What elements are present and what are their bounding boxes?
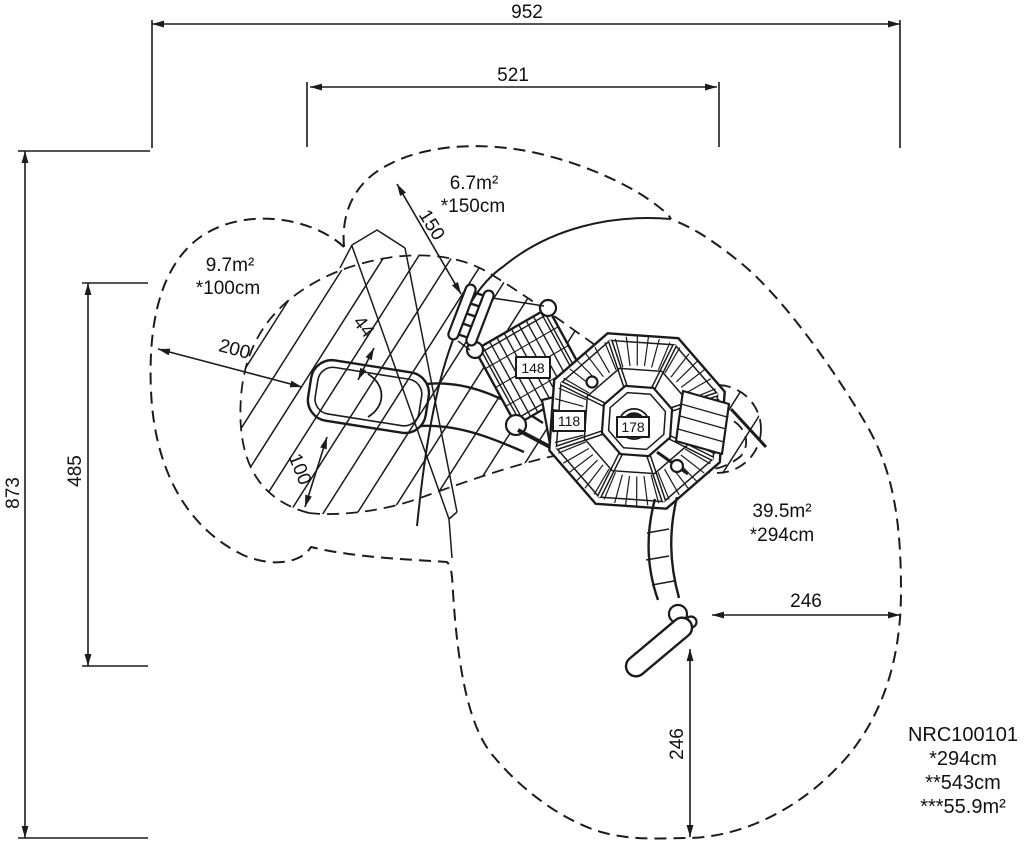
zone-right-area: 39.5m² [752,501,811,522]
zone-left-area: 9.7m² [206,255,255,276]
dim-246-bottom-label: 246 [667,728,688,760]
tower-post-ball-right [671,460,683,472]
dimension-521: 521 [307,65,719,147]
zone-top-label: 6.7m² *150cm [441,173,505,217]
safety-zone-boundaries [60,146,1024,838]
dim-485-label: 485 [65,455,86,487]
zone-top-area: 6.7m² [450,173,499,194]
entry-ladder [447,283,495,347]
zone-left-radius: *100cm [196,278,260,299]
bench-divider-arc [368,374,382,417]
technical-drawing-canvas: 952 521 873 485 246 246 150 200 44 [0,0,1024,847]
dim-873-label: 873 [3,477,24,509]
dimension-246-bottom: 246 [667,649,690,837]
dim-246-right-label: 246 [790,591,822,612]
slide [622,497,697,680]
zone-right-label: 39.5m² *294cm [750,501,814,546]
dim-44-label: 44 [348,312,378,342]
part-148-text: 148 [521,360,545,376]
zone-boundary-top [344,146,671,247]
dimension-873: 873 [3,151,150,838]
product-code: NRC100101 [908,724,1018,746]
part-label-118: 118 [553,411,585,431]
part-label-148: 148 [516,357,550,378]
product-spec-3: ***55.9m² [920,796,1006,818]
zone-right-radius: *294cm [750,525,814,546]
zone-left-label: 9.7m² *100cm [196,255,260,299]
dim-200-label: 200 [216,335,252,363]
dimension-100: 100 [284,437,327,507]
part-label-178: 178 [617,417,649,437]
part-118-text: 118 [558,413,581,429]
dim-521-label: 521 [497,65,529,86]
zone-top-radius: *150cm [441,196,505,217]
technical-drawing-page: 952 521 873 485 246 246 150 200 44 [0,0,1024,847]
dim-952-label: 952 [511,2,543,23]
frame-post-top-right [540,300,556,316]
dim-100-label: 100 [284,451,315,488]
product-spec-1: *294cm [929,748,997,770]
tower-post-ball-left [587,377,598,388]
dimension-485: 485 [65,283,148,666]
product-spec-2: **543cm [925,772,1001,794]
part-178-text: 178 [621,419,645,435]
product-info: NRC100101 *294cm **543cm ***55.9m² [908,724,1018,818]
slide-runout [622,614,696,681]
dimension-200: 200 [158,335,302,387]
dimension-246-right: 246 [712,591,900,615]
